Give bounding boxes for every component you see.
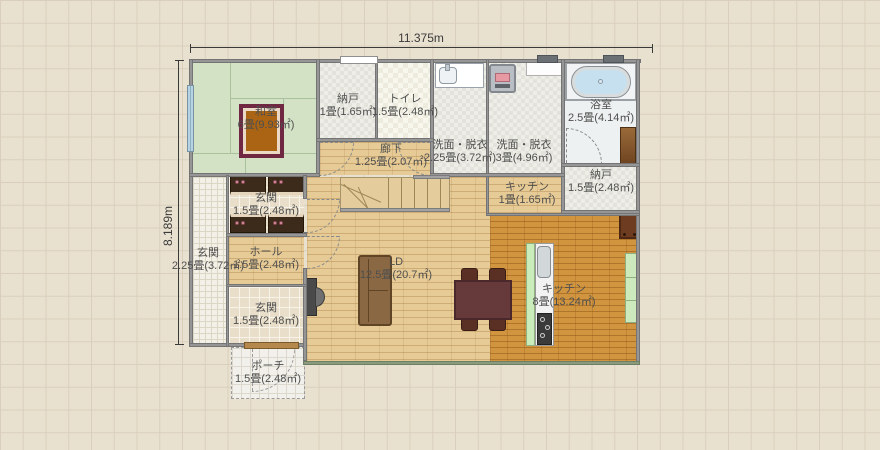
wall-rouka-north	[316, 138, 434, 142]
stove-burner-icon	[540, 333, 545, 338]
cabinet-handle-icon	[235, 221, 239, 225]
floorplan-canvas[interactable]: 11.375m 8.189m	[0, 0, 880, 450]
wall-north	[189, 59, 641, 63]
cabinet-handle-icon	[279, 180, 283, 184]
wall-senmen-south	[430, 173, 565, 177]
width-dimension-label: 11.375m	[398, 31, 444, 45]
kitchen-sink	[537, 246, 551, 278]
height-dimension-label: 8.189m	[161, 206, 175, 246]
bathtub-surround[interactable]	[565, 62, 637, 101]
door-leaf	[320, 142, 353, 144]
wall-washitsu-east	[316, 59, 320, 177]
room-hall[interactable]	[229, 237, 304, 285]
cabinet-handle-icon	[241, 221, 245, 225]
room-genkan-tile[interactable]	[193, 177, 227, 344]
stair-handrail-bottom	[340, 208, 450, 212]
window[interactable]	[340, 56, 378, 64]
room-kitchen-small[interactable]	[489, 177, 562, 214]
wall-toilet-senmen	[430, 59, 434, 177]
kitchen-counter[interactable]	[526, 243, 535, 346]
stove-burner-icon	[545, 325, 550, 330]
door-leaf	[307, 236, 339, 238]
bathtub-drain-icon	[598, 79, 603, 84]
height-dimension-tick-bottom	[175, 344, 184, 345]
stove-burner-icon	[540, 317, 545, 322]
door-leaf	[252, 349, 254, 391]
shoe-cabinet[interactable]	[230, 176, 266, 195]
height-dimension-line	[178, 60, 179, 345]
door-leaf	[566, 128, 568, 163]
sofa-seam	[368, 290, 388, 291]
door-leaf	[398, 142, 430, 144]
entrance-door[interactable]	[244, 342, 299, 349]
room-nando-right[interactable]	[565, 167, 637, 211]
width-dimension-tick-right	[652, 44, 653, 53]
window[interactable]	[537, 55, 558, 63]
wall-bath-south	[561, 163, 640, 167]
window-pane-line	[190, 86, 191, 151]
tatami-seam	[230, 98, 317, 99]
cabinet-handle-icon	[273, 221, 277, 225]
window[interactable]	[603, 55, 624, 63]
laundry-counter[interactable]	[526, 62, 562, 76]
staircase[interactable]	[340, 177, 450, 211]
shoe-cabinet[interactable]	[268, 214, 304, 233]
cabinet-handle-icon	[273, 180, 277, 184]
wall-hall-ld-segment	[303, 175, 307, 199]
washing-machine-panel	[495, 84, 510, 88]
tatami-table[interactable]	[239, 104, 284, 158]
washbasin-faucet	[445, 64, 450, 71]
tatami-seam	[230, 63, 231, 153]
wall-hall-ld-segment	[303, 268, 307, 361]
wall-shoe-hall	[226, 233, 307, 237]
washing-machine[interactable]	[489, 64, 516, 93]
door-leaf	[307, 199, 339, 201]
wall-washitsu-south	[189, 173, 320, 177]
room-nando-top[interactable]	[320, 63, 375, 139]
stair-handrail-top	[413, 175, 450, 179]
washbasin[interactable]	[435, 63, 484, 88]
wall-senmen-senmen	[486, 59, 489, 215]
room-genkan-lower[interactable]	[229, 287, 304, 344]
sofa[interactable]	[358, 255, 392, 326]
wall-south-main	[303, 361, 640, 365]
shoe-cabinet[interactable]	[268, 176, 304, 195]
wall-hall-genkan	[226, 284, 307, 287]
width-dimension-tick-left	[190, 44, 191, 53]
window[interactable]	[187, 85, 194, 152]
kitchen-sink-stove-unit[interactable]	[535, 243, 554, 346]
wall-senmen-bath	[561, 59, 565, 215]
room-toilet[interactable]	[378, 63, 431, 139]
cabinet-handle-icon	[235, 180, 239, 184]
shoe-cabinet[interactable]	[230, 214, 266, 233]
refrigerator-handle-icon	[623, 233, 626, 236]
washing-machine-lid	[495, 73, 510, 82]
cabinet-handle-icon	[279, 221, 283, 225]
wall-kitchen-north	[486, 213, 640, 216]
height-dimension-tick-top	[175, 60, 184, 61]
wall-genkan-divider	[226, 175, 229, 347]
stair-treads	[376, 178, 450, 211]
wall-nando-toilet	[375, 59, 378, 142]
dining-table[interactable]	[454, 280, 512, 320]
cabinet-handle-icon	[241, 180, 245, 184]
bath-shower-panel[interactable]	[620, 127, 636, 165]
width-dimension-line	[190, 47, 653, 48]
